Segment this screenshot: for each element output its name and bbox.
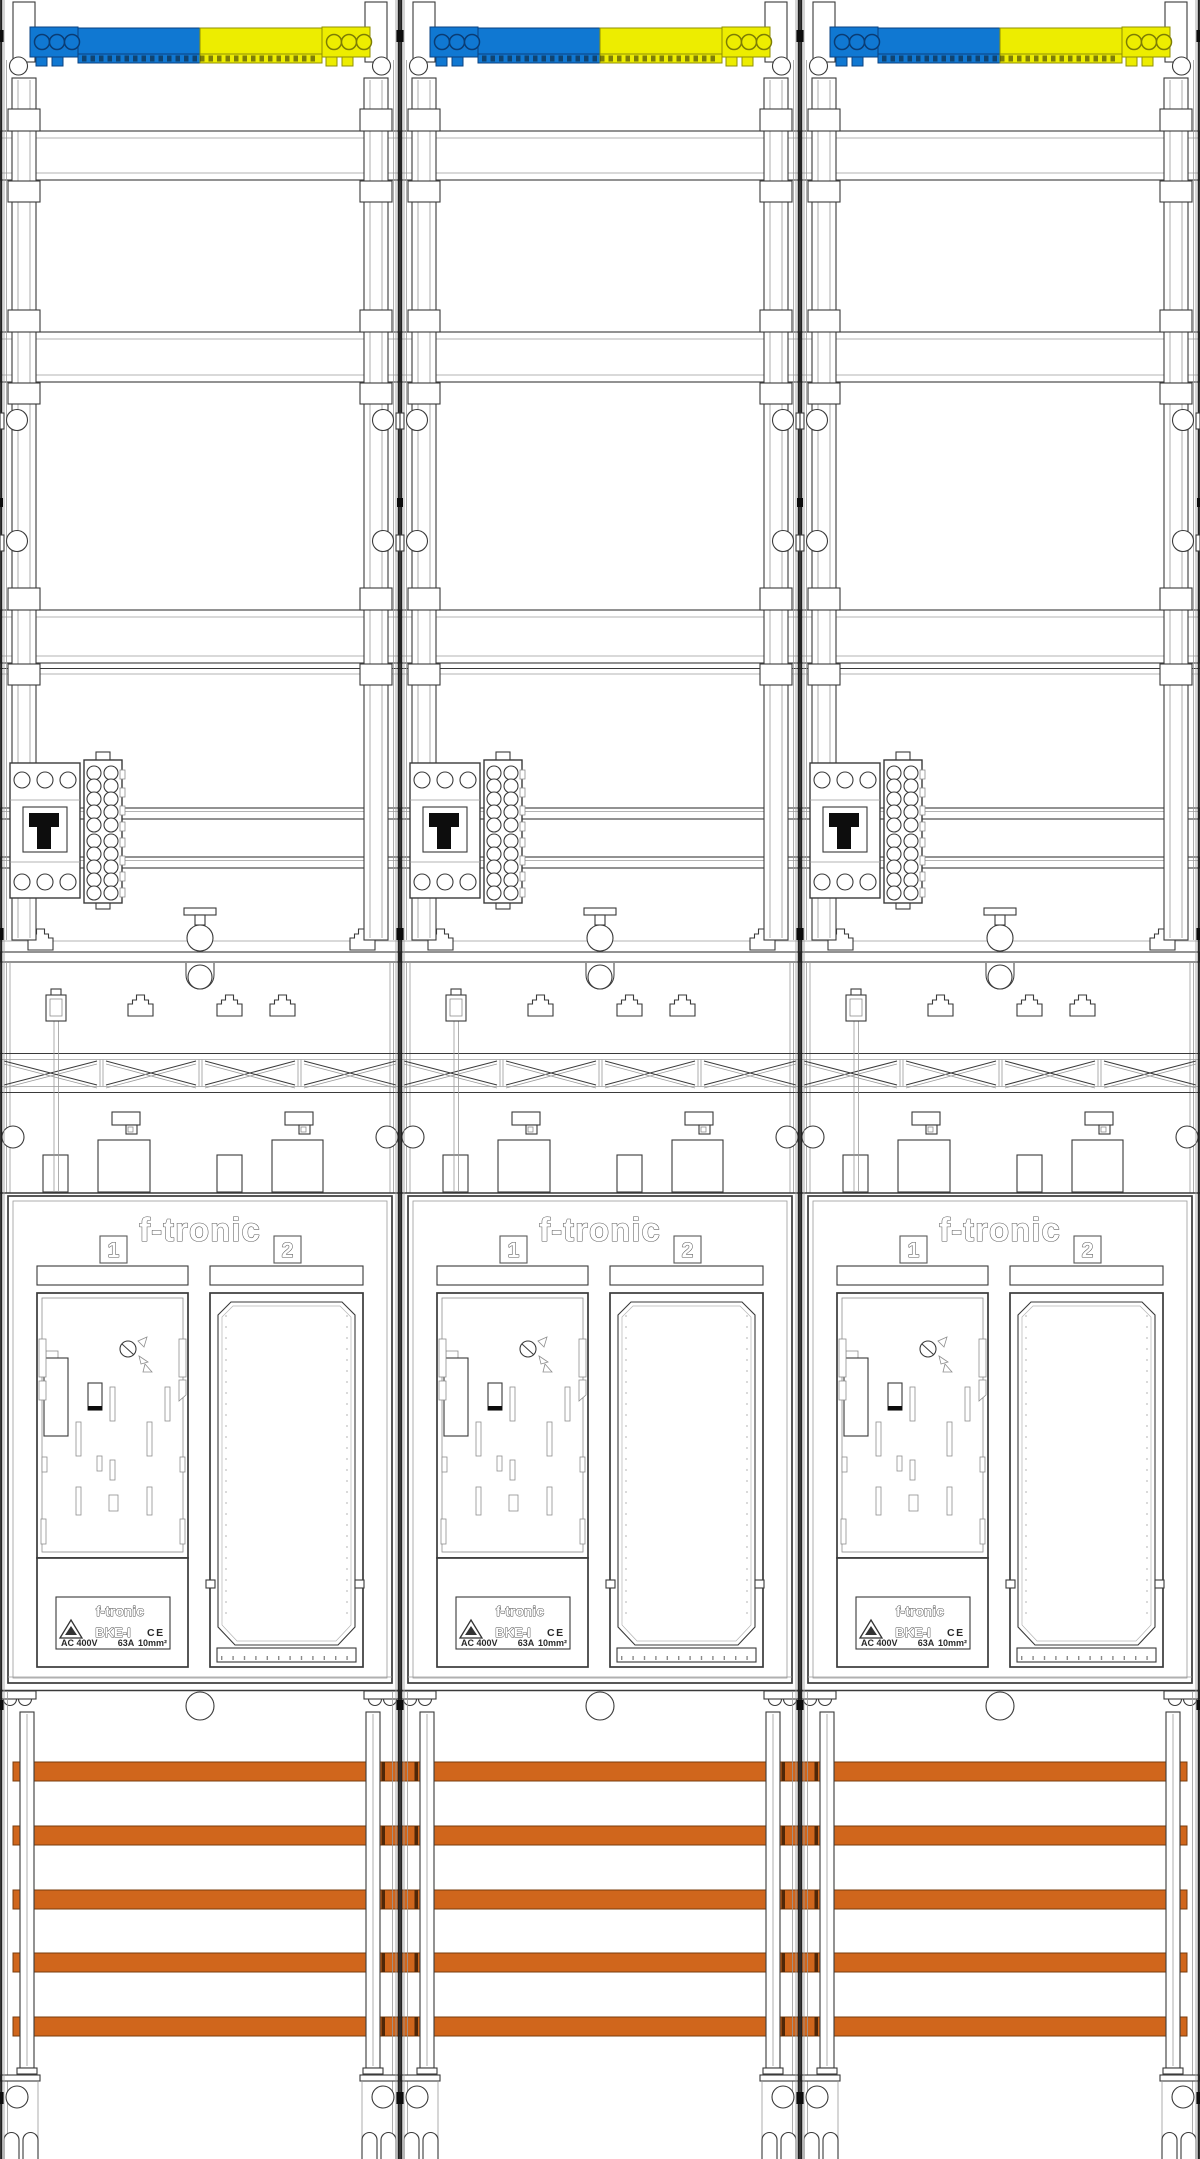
busbar-3	[13, 1890, 1187, 1909]
module-2-base	[400, 2, 800, 1720]
module-3-base	[800, 2, 1200, 1720]
busbar-5	[13, 2017, 1187, 2036]
busbar-4	[13, 1953, 1187, 1972]
electrical-cabinet-drawing: f-tronic 1 2	[0, 0, 1200, 2159]
module-1-base	[0, 2, 400, 1720]
busbar-1	[13, 1762, 1187, 1781]
busbar-2	[13, 1826, 1187, 1845]
cabinet-modules-base	[0, 2, 1200, 1720]
busbars	[13, 1762, 1187, 2036]
